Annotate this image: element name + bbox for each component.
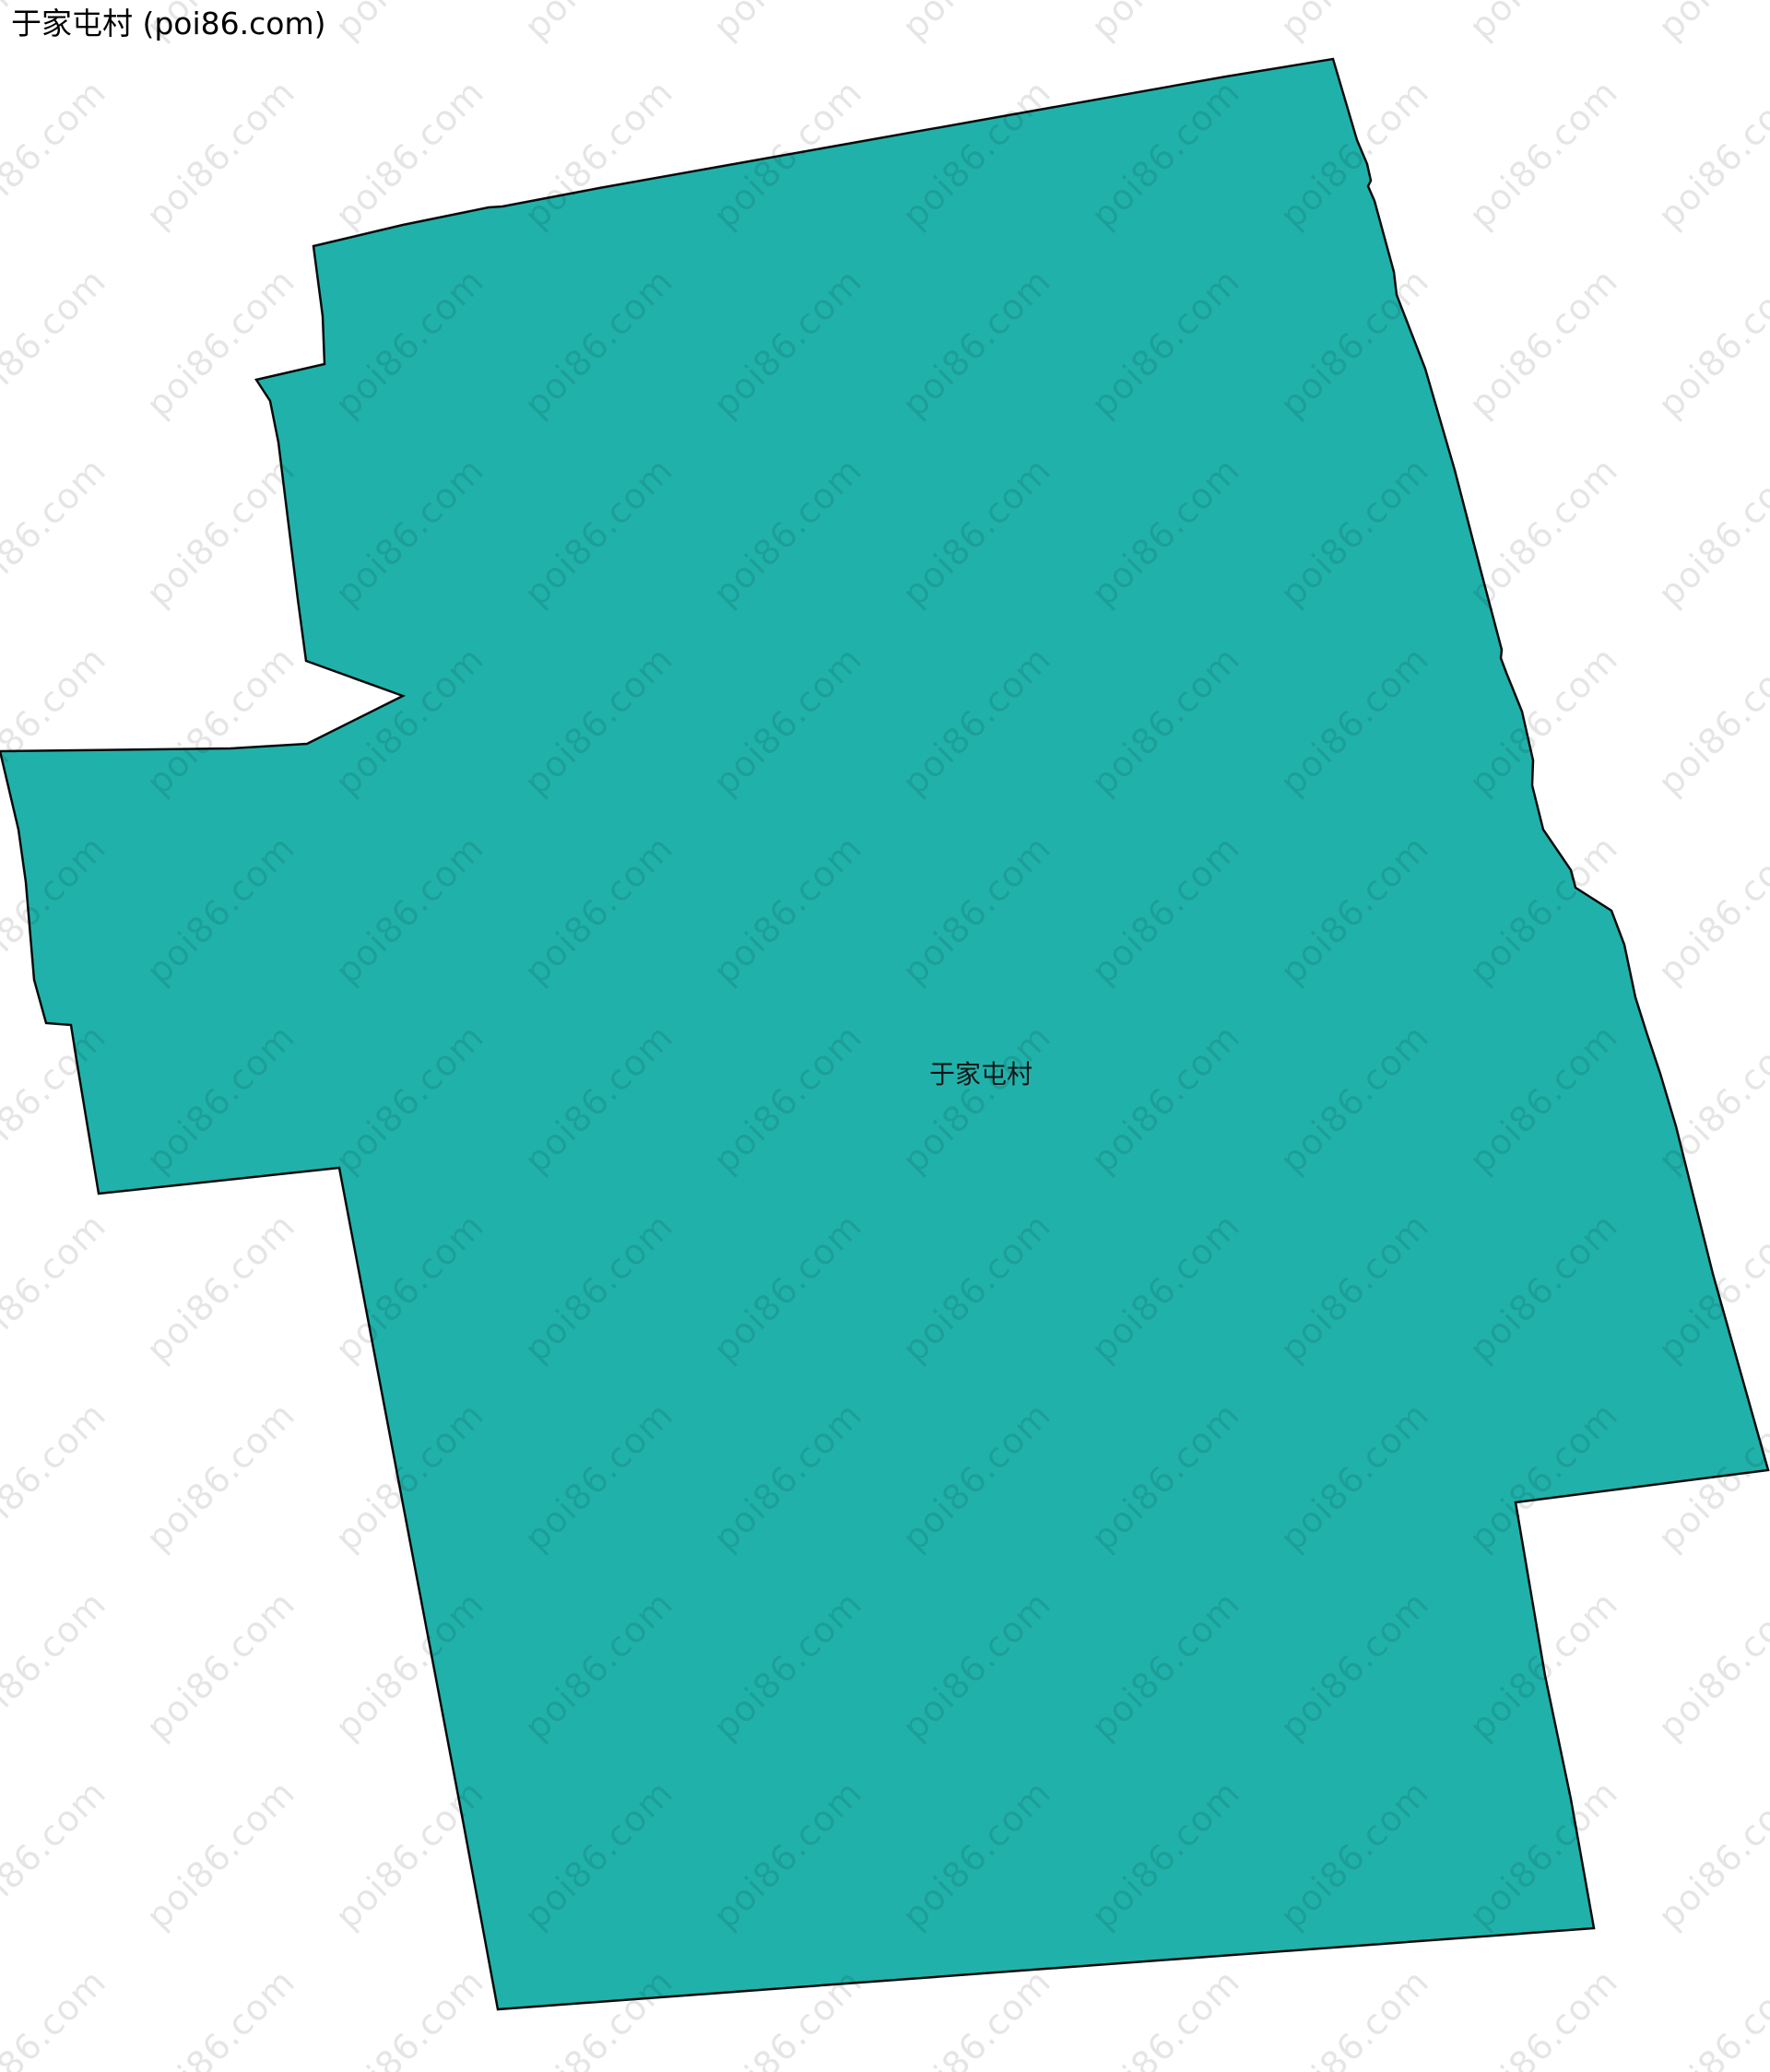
page-title: 于家屯村 (poi86.com)	[11, 6, 326, 42]
boundary-svg	[0, 0, 1770, 2072]
village-boundary-polygon	[0, 59, 1768, 2009]
map-canvas: poi86.compoi86.compoi86.compoi86.compoi8…	[0, 0, 1770, 2072]
village-label: 于家屯村	[929, 1054, 1032, 1091]
